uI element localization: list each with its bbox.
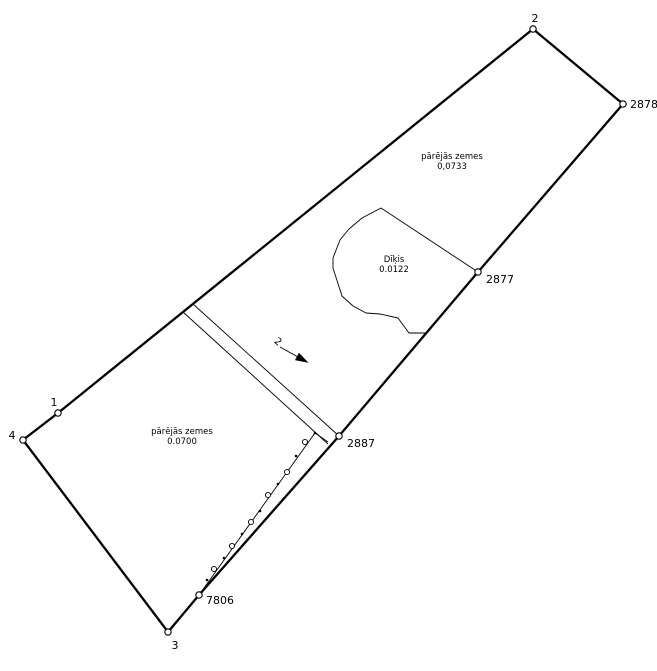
road-edge-2 — [183, 312, 328, 444]
boundary-point-label-2877: 2877 — [486, 273, 514, 286]
boundary-point-2 — [530, 26, 536, 32]
road-edge-1 — [193, 304, 339, 436]
road-number-label: 2 — [272, 336, 284, 349]
fence-circle-marker-3 — [265, 492, 270, 497]
fence-circle-marker-4 — [248, 519, 253, 524]
road-lines — [183, 304, 339, 444]
fence-circle-marker-5 — [229, 543, 234, 548]
boundary-point-label-4: 4 — [9, 429, 16, 442]
boundary-point-label-1: 1 — [51, 396, 58, 409]
boundary-point-label-2887: 2887 — [347, 437, 375, 450]
boundary-point-3 — [165, 629, 171, 635]
boundary-point-7806 — [196, 592, 202, 598]
fence-circle-marker-2 — [284, 469, 289, 474]
boundary-point-label-2878: 2878 — [630, 98, 657, 111]
fence-circle-marker-1 — [302, 439, 307, 444]
area-label-value-upper-parcel: 0,0733 — [437, 162, 467, 172]
parcel-boundary-polygon — [23, 29, 623, 632]
fence-dot-marker-4 — [259, 510, 262, 513]
boundary-point-label-3: 3 — [172, 639, 179, 652]
fence-line — [199, 432, 328, 595]
fence-dot-marker-6 — [223, 557, 226, 560]
fence-path — [199, 433, 328, 595]
boundary-point-4 — [20, 437, 26, 443]
boundary-point-label-7806: 7806 — [206, 594, 234, 607]
boundary-point-2887 — [336, 433, 342, 439]
boundary-point-2878 — [620, 101, 626, 107]
fence-dot-marker-2 — [295, 455, 298, 458]
area-label-name-upper-parcel: pārējās zemes — [421, 152, 483, 162]
fence-circle-marker-6 — [211, 566, 216, 571]
fence-dot-marker-5 — [241, 533, 244, 536]
fence-dot-marker-1 — [314, 432, 317, 435]
fence-dot-marker-3 — [277, 483, 280, 486]
area-label-value-lower-parcel: 0.0700 — [167, 437, 197, 447]
pond-label-value: 0.0122 — [379, 265, 409, 275]
parcel-boundary — [23, 29, 623, 632]
map-labels: 22878287728877806341pārējās zemes0,0733p… — [9, 12, 657, 652]
survey-drawing: 22878287728877806341pārējās zemes0,0733p… — [0, 0, 657, 671]
boundary-point-label-2: 2 — [532, 12, 539, 25]
boundary-points — [20, 26, 626, 635]
road-direction-arrow-shaft — [280, 347, 298, 357]
boundary-point-1 — [55, 410, 61, 416]
pond-label-name: Dīķis — [384, 255, 405, 265]
road-direction-arrow-head — [296, 354, 307, 362]
area-label-name-lower-parcel: pārējās zemes — [151, 427, 213, 437]
boundary-point-2877 — [475, 269, 481, 275]
cadastral-map: 22878287728877806341pārējās zemes0,0733p… — [0, 0, 657, 671]
fence-dot-marker-7 — [206, 579, 209, 582]
